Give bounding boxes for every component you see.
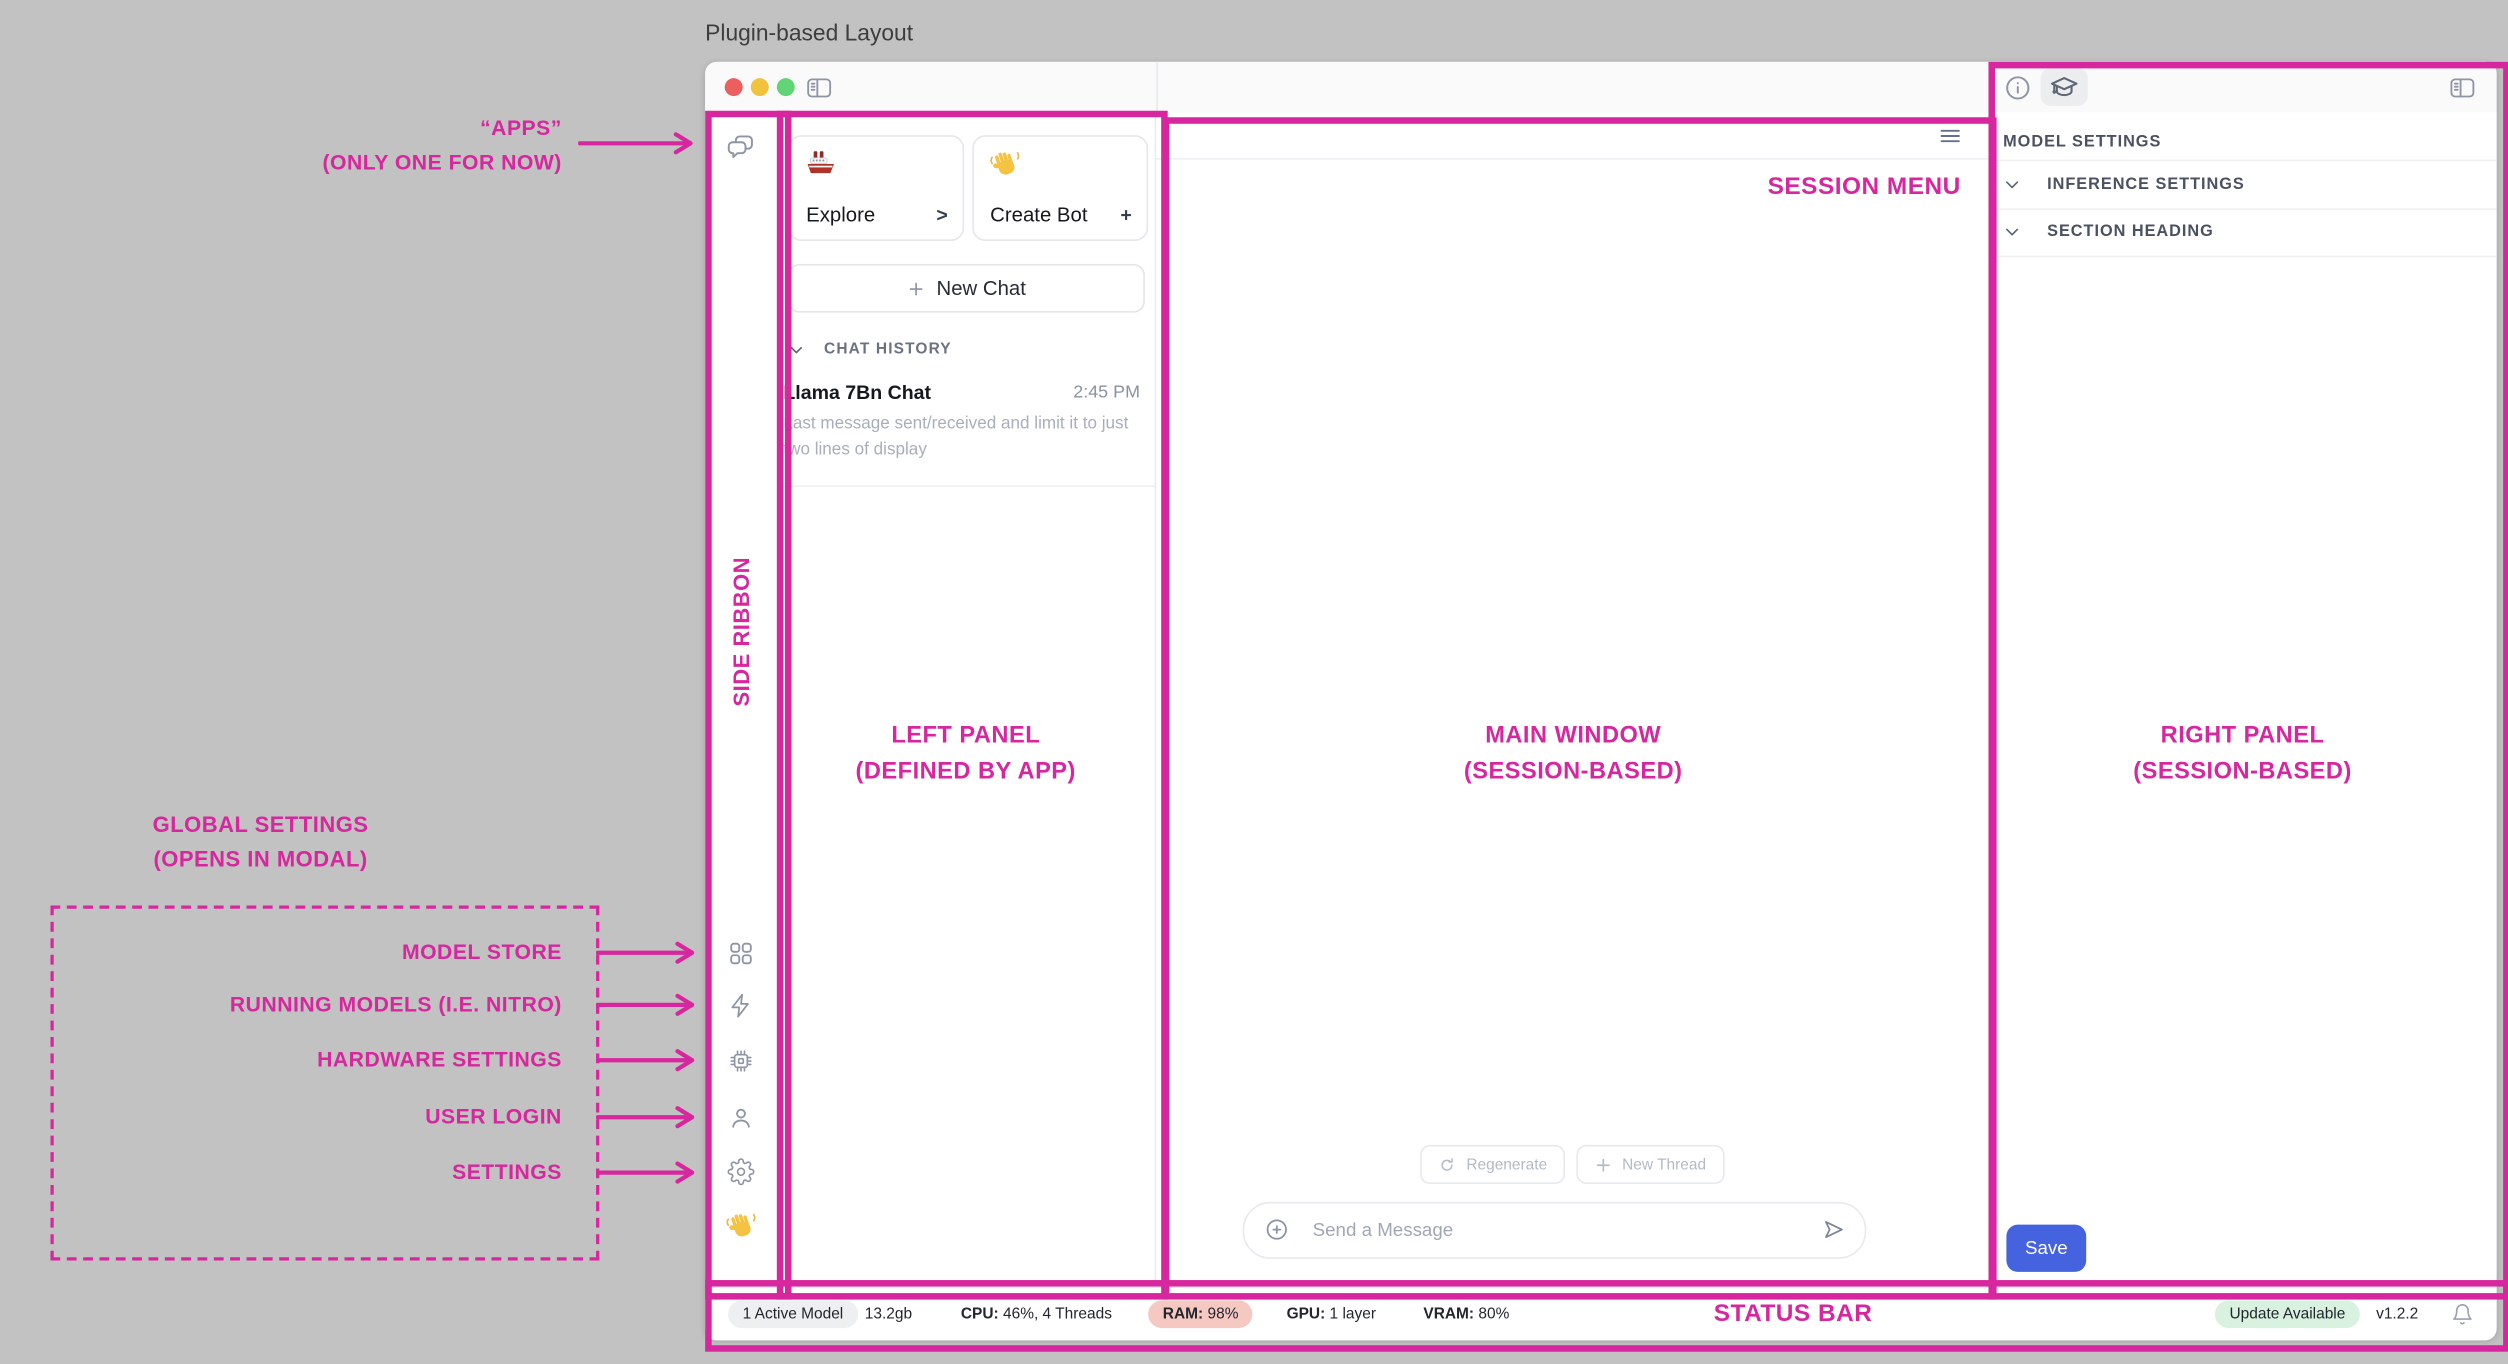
chat-bubbles-icon bbox=[726, 132, 757, 163]
gpu-stat: GPU: 1 layer bbox=[1287, 1305, 1376, 1323]
close-traffic-light[interactable] bbox=[725, 78, 743, 96]
regenerate-button[interactable]: Regenerate bbox=[1421, 1145, 1565, 1184]
section-heading-row[interactable]: SECTION HEADING bbox=[2003, 223, 2214, 241]
create-bot-card[interactable]: Create Bot + bbox=[972, 135, 1148, 241]
app-window: Explore > bbox=[705, 62, 2496, 1339]
right-panel: MODEL SETTINGS INFERENCE SETTINGS SECTIO… bbox=[1988, 112, 2496, 1286]
regenerate-label: Regenerate bbox=[1466, 1155, 1547, 1173]
titlebar-divider bbox=[1988, 62, 1990, 112]
minimize-traffic-light[interactable] bbox=[751, 78, 769, 96]
running-models-annotation: RUNNING MODELS (I.E. NITRO) bbox=[73, 990, 562, 1019]
side-ribbon bbox=[705, 112, 778, 1286]
divider bbox=[783, 485, 1154, 487]
ram-badge: RAM: 98% bbox=[1148, 1300, 1253, 1328]
new-thread-label: New Thread bbox=[1622, 1155, 1706, 1173]
wave-hand-emoji bbox=[989, 148, 1022, 189]
ribbon-user-login[interactable] bbox=[727, 1104, 755, 1132]
ribbon-app-chat[interactable] bbox=[726, 132, 757, 163]
active-models-badge: 1 Active Model bbox=[728, 1300, 858, 1328]
model-store-annotation: MODEL STORE bbox=[73, 938, 562, 967]
memory-usage: 13.2gb bbox=[865, 1305, 912, 1323]
hardware-settings-annotation: HARDWARE SETTINGS bbox=[73, 1046, 562, 1075]
sidebar-toggle-icon bbox=[2448, 72, 2477, 101]
explore-card[interactable]: Explore > bbox=[788, 135, 964, 241]
attach-button[interactable] bbox=[1264, 1217, 1290, 1243]
main-header bbox=[1156, 112, 1988, 159]
gear-icon bbox=[727, 1158, 755, 1186]
page-title: Plugin-based Layout bbox=[705, 20, 913, 46]
apps-annotation: “APPS” (ONLY ONE FOR NOW) bbox=[73, 111, 562, 179]
settings-annotation: SETTINGS bbox=[73, 1158, 562, 1187]
chat-history-label: CHAT HISTORY bbox=[824, 340, 952, 358]
wave-hand-emoji bbox=[725, 1210, 758, 1243]
titlebar-divider bbox=[1156, 62, 1158, 112]
global-settings-group-box bbox=[50, 905, 599, 1260]
new-chat-label: New Chat bbox=[937, 277, 1026, 300]
inference-settings-label: INFERENCE SETTINGS bbox=[2047, 176, 2245, 194]
hamburger-menu-icon bbox=[1936, 122, 1964, 150]
divider bbox=[1988, 208, 2496, 210]
model-settings-tab-button[interactable] bbox=[2041, 68, 2088, 105]
chat-item-title: Llama 7Bn Chat bbox=[783, 381, 931, 404]
zap-icon bbox=[727, 992, 755, 1020]
running-models-arrow bbox=[596, 992, 707, 1018]
user-login-annotation: USER LOGIN bbox=[73, 1103, 562, 1132]
graduation-cap-icon bbox=[2049, 72, 2080, 103]
circle-plus-icon bbox=[1264, 1217, 1290, 1243]
ribbon-settings[interactable] bbox=[727, 1158, 755, 1186]
create-bot-card-label: Create Bot bbox=[990, 204, 1087, 227]
status-bar: 1 Active Model 13.2gb CPU: 46%, 4 Thread… bbox=[705, 1287, 2496, 1341]
ship-emoji bbox=[805, 148, 838, 189]
chevron-down-icon bbox=[2003, 223, 2021, 241]
plus-icon bbox=[907, 279, 925, 297]
info-icon bbox=[2002, 72, 2031, 101]
zoom-traffic-light[interactable] bbox=[777, 78, 795, 96]
left-sidebar-toggle-button[interactable] bbox=[803, 72, 836, 103]
inference-settings-row[interactable]: INFERENCE SETTINGS bbox=[2003, 176, 2245, 194]
explore-card-chevron: > bbox=[936, 204, 947, 227]
window-titlebar bbox=[705, 62, 2496, 114]
user-login-arrow bbox=[596, 1104, 707, 1130]
main-window: Regenerate New Thread bbox=[1156, 112, 1988, 1286]
model-settings-header: MODEL SETTINGS bbox=[2003, 134, 2161, 152]
session-menu-button[interactable] bbox=[1933, 121, 1966, 152]
hardware-settings-arrow bbox=[596, 1047, 707, 1073]
model-store-arrow bbox=[596, 940, 707, 966]
cpu-stat: CPU: 46%, 4 Threads bbox=[961, 1305, 1112, 1323]
grid-icon bbox=[727, 940, 755, 968]
info-tab-button[interactable] bbox=[2002, 72, 2033, 103]
ribbon-wave-app[interactable] bbox=[725, 1210, 758, 1251]
message-input[interactable] bbox=[1309, 1204, 1788, 1258]
divider bbox=[1988, 256, 2496, 258]
left-panel: Explore > bbox=[777, 112, 1156, 1286]
chat-item-preview: Last message sent/received and limit it … bbox=[783, 412, 1135, 463]
user-icon bbox=[727, 1104, 755, 1132]
section-heading-label: SECTION HEADING bbox=[2047, 223, 2214, 241]
chat-item-time: 2:45 PM bbox=[1073, 383, 1140, 403]
chevron-down-icon bbox=[2003, 176, 2021, 194]
new-thread-button[interactable]: New Thread bbox=[1577, 1145, 1725, 1184]
refresh-icon bbox=[1439, 1155, 1457, 1173]
app-version: v1.2.2 bbox=[2376, 1305, 2418, 1323]
global-settings-annotation: GLOBAL SETTINGS (OPENS IN MODAL) bbox=[98, 808, 424, 876]
update-available-badge[interactable]: Update Available bbox=[2215, 1300, 2360, 1328]
sidebar-toggle-icon bbox=[805, 72, 834, 101]
canvas: Plugin-based Layout bbox=[0, 0, 2508, 1364]
apps-arrow bbox=[578, 130, 705, 156]
notifications-button[interactable] bbox=[2451, 1303, 2474, 1326]
right-sidebar-toggle-button[interactable] bbox=[2446, 72, 2479, 103]
settings-arrow bbox=[596, 1160, 707, 1186]
bell-icon bbox=[2451, 1303, 2474, 1326]
new-chat-button[interactable]: New Chat bbox=[788, 264, 1145, 313]
vram-stat: VRAM: 80% bbox=[1423, 1305, 1509, 1323]
explore-card-label: Explore bbox=[806, 204, 875, 227]
chat-history-header[interactable]: CHAT HISTORY bbox=[788, 340, 952, 358]
chevron-down-icon bbox=[788, 341, 804, 357]
send-icon bbox=[1821, 1217, 1847, 1243]
ribbon-running-models[interactable] bbox=[727, 992, 755, 1020]
message-input-container bbox=[1243, 1202, 1867, 1259]
chip-icon bbox=[727, 1047, 755, 1075]
divider bbox=[1988, 160, 2496, 162]
create-bot-card-plus: + bbox=[1120, 204, 1131, 227]
send-button[interactable] bbox=[1821, 1217, 1847, 1243]
ribbon-hardware-settings[interactable] bbox=[727, 1047, 755, 1075]
plus-icon bbox=[1594, 1155, 1612, 1173]
save-button[interactable]: Save bbox=[2006, 1225, 2086, 1272]
ribbon-model-store[interactable] bbox=[727, 940, 755, 968]
